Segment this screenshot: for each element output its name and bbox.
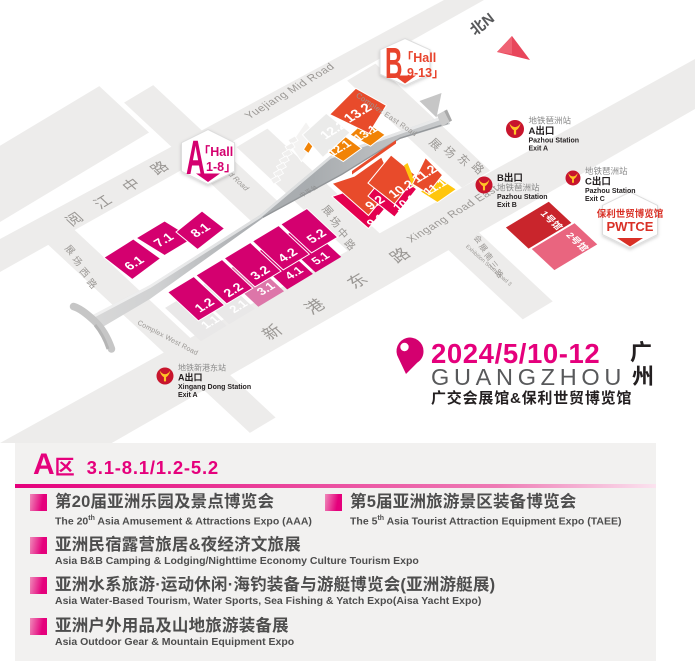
svg-text:Pazhou Station: Pazhou Station — [529, 137, 580, 144]
svg-text:Exit A: Exit A — [529, 146, 549, 153]
svg-text:Xingang Dong Station: Xingang Dong Station — [178, 384, 251, 391]
svg-text:PWTCE: PWTCE — [607, 219, 654, 234]
svg-text:Exit B: Exit B — [497, 202, 517, 209]
svg-text:GUANGZHOU: GUANGZHOU — [431, 364, 626, 390]
svg-text:1-8｣: 1-8｣ — [206, 160, 230, 174]
svg-text:地铁琶洲站: 地铁琶洲站 — [585, 166, 628, 176]
svg-text:A: A — [186, 132, 205, 185]
svg-text:A出口: A出口 — [529, 125, 555, 137]
svg-text:C出口: C出口 — [585, 176, 611, 188]
svg-text:广交会展馆&保利世贸博览馆: 广交会展馆&保利世贸博览馆 — [431, 389, 632, 407]
svg-text:Pazhou Station: Pazhou Station — [585, 188, 636, 195]
svg-text:B: B — [385, 38, 402, 88]
svg-text:A出口: A出口 — [178, 372, 203, 383]
svg-text:｢Hall: ｢Hall — [204, 145, 233, 159]
svg-text:Exit A: Exit A — [178, 392, 198, 399]
svg-text:地铁新港东站: 地铁新港东站 — [178, 362, 226, 372]
svg-text:Exit C: Exit C — [585, 196, 605, 203]
svg-text:州: 州 — [632, 364, 654, 389]
svg-text:｢Hall: ｢Hall — [407, 51, 436, 65]
svg-text:广: 广 — [630, 340, 652, 365]
svg-text:9-13｣: 9-13｣ — [407, 66, 438, 80]
svg-text:Pazhou Station: Pazhou Station — [497, 194, 548, 201]
svg-text:地铁琶洲站: 地铁琶洲站 — [529, 115, 572, 125]
svg-text:地铁琶洲站: 地铁琶洲站 — [497, 183, 540, 193]
